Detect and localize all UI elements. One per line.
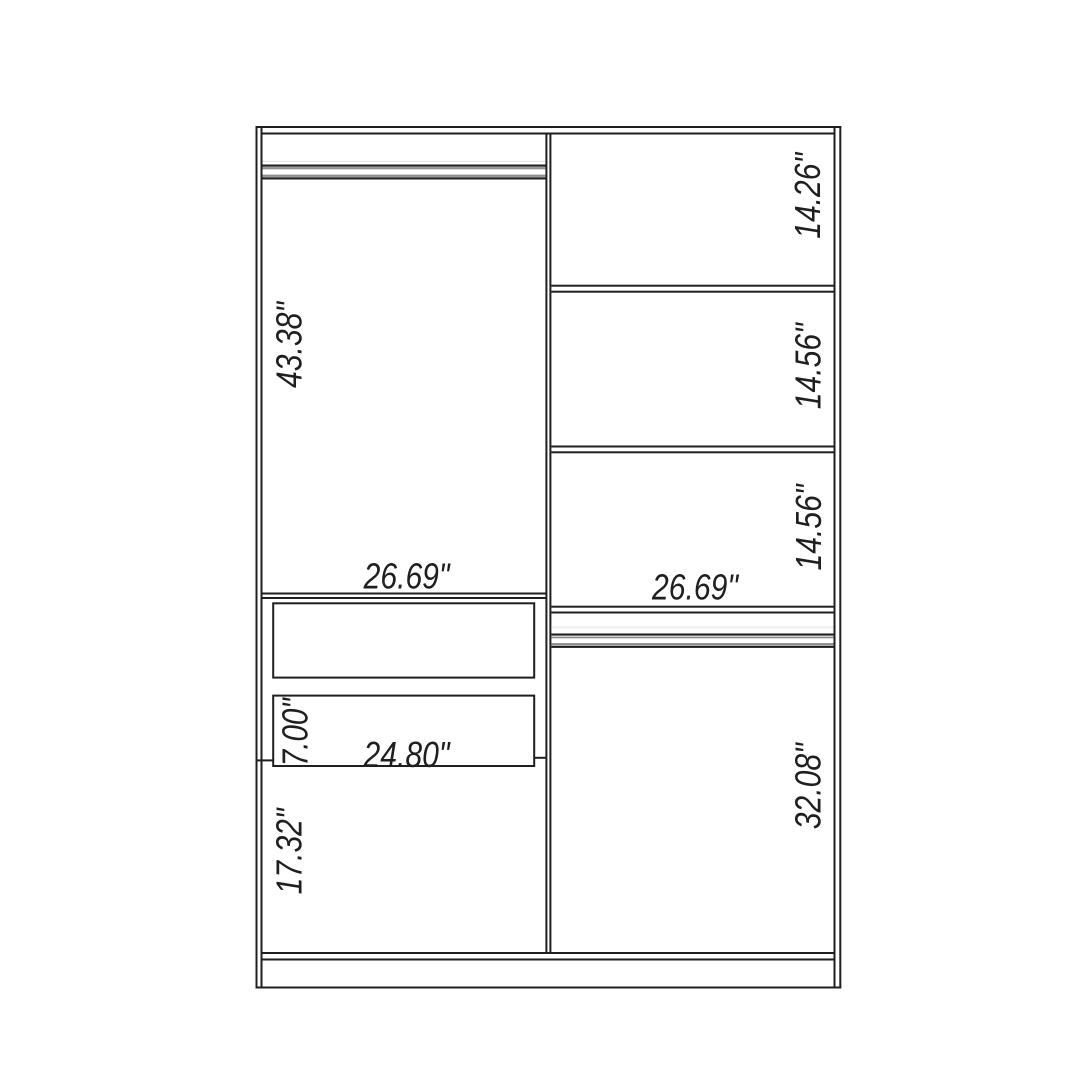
svg-text:14.56": 14.56"	[788, 322, 829, 410]
svg-text:7.00": 7.00"	[275, 697, 316, 767]
svg-text:43.38": 43.38"	[269, 300, 310, 388]
svg-text:24.80": 24.80"	[363, 734, 452, 775]
svg-text:14.56": 14.56"	[788, 483, 829, 571]
svg-text:14.26": 14.26"	[787, 151, 828, 239]
svg-text:17.32": 17.32"	[269, 807, 310, 895]
svg-text:32.08": 32.08"	[788, 742, 829, 830]
svg-text:26.69": 26.69"	[363, 556, 452, 597]
svg-text:26.69": 26.69"	[651, 567, 740, 608]
